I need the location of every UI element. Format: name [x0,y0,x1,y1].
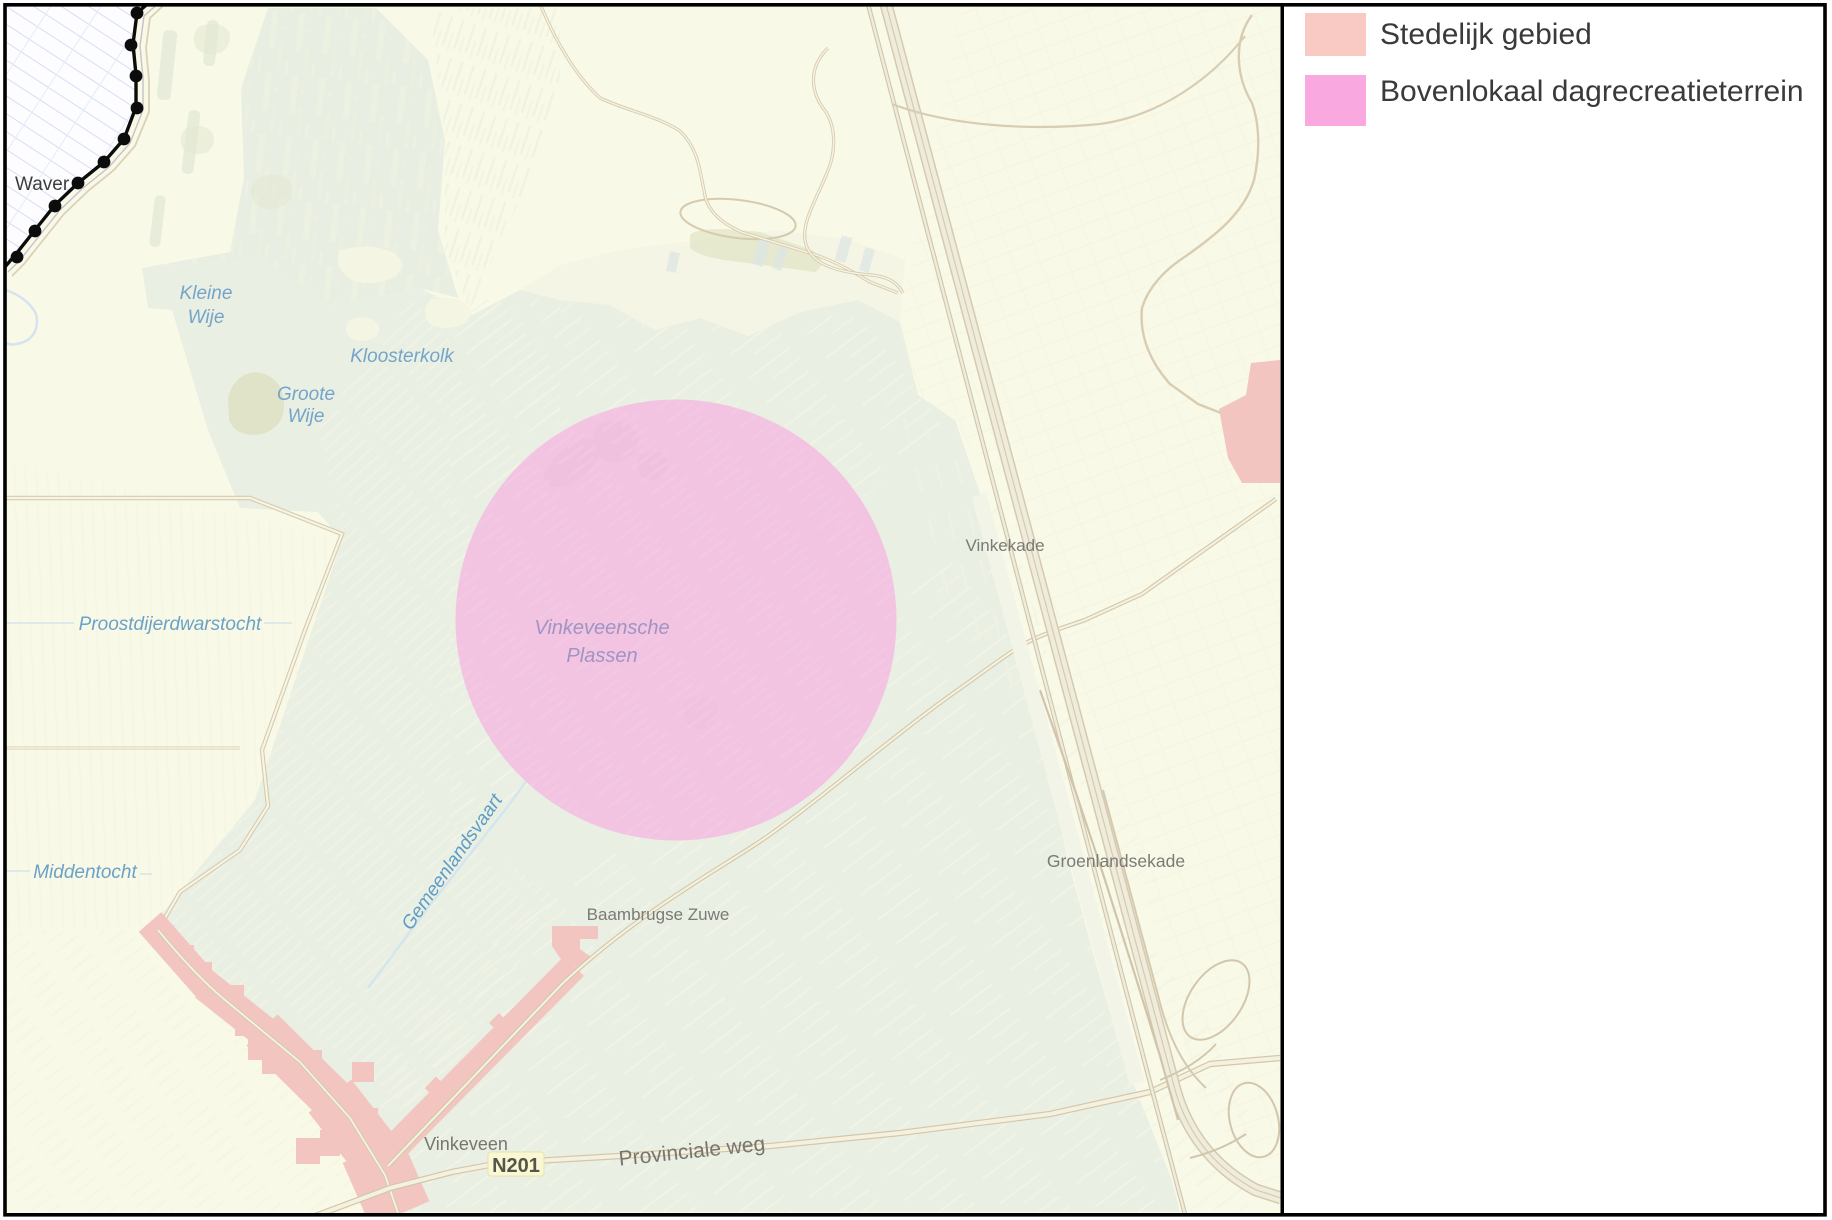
svg-text:Vinkeveensche: Vinkeveensche [534,617,669,639]
svg-text:Plassen: Plassen [566,645,637,667]
svg-text:Stedelijk gebied: Stedelijk gebied [1380,18,1592,51]
svg-text:Vinkekade: Vinkekade [965,536,1044,555]
svg-text:Kleine: Kleine [180,283,233,304]
svg-text:N201: N201 [492,1155,540,1177]
svg-text:Bovenlokaal dagrecreatieterrei: Bovenlokaal dagrecreatieterrein [1380,75,1804,108]
svg-text:Wije: Wije [288,406,325,427]
svg-text:Middentocht: Middentocht [33,862,137,883]
svg-text:Groote: Groote [277,384,335,405]
svg-text:Kloosterkolk: Kloosterkolk [350,346,455,367]
svg-text:Baambrugse Zuwe: Baambrugse Zuwe [587,905,730,924]
svg-text:Waver: Waver [15,174,70,195]
svg-text:Groenlandsekade: Groenlandsekade [1047,851,1185,871]
svg-text:Wije: Wije [188,307,225,328]
svg-text:Proostdijerdwarstocht: Proostdijerdwarstocht [79,614,262,635]
svg-text:Vinkeveen: Vinkeveen [424,1134,508,1154]
